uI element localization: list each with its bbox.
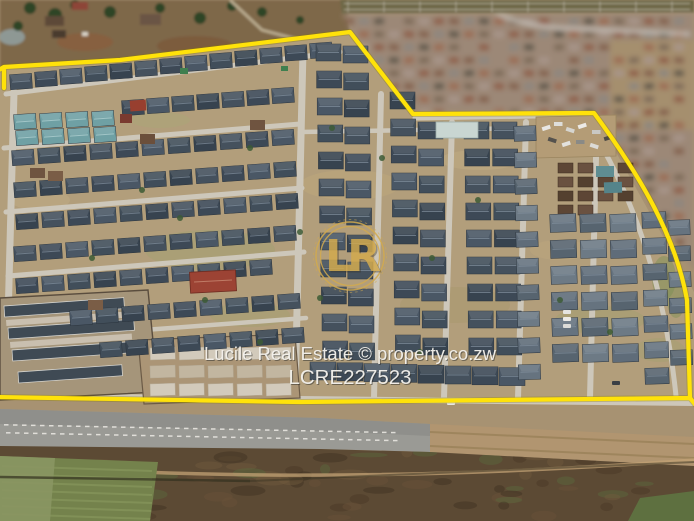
suburb-house [569,44,579,51]
lane-dash [49,425,54,427]
suburb-house [359,18,369,25]
house [222,229,245,245]
suburb-house [554,31,564,38]
suburb-house [389,43,400,51]
scrub-patch [453,501,477,509]
lane-dash [121,426,126,428]
car [563,317,571,321]
house [514,152,537,168]
tree [202,297,208,303]
house [68,273,91,289]
red-roof-building [72,2,88,10]
green-field-light [0,456,55,521]
scrub-patch [342,503,361,511]
house [274,225,297,241]
house [118,237,141,253]
lane-dash [13,424,18,426]
house [14,181,37,197]
house [518,338,541,354]
house [317,98,342,115]
house [152,337,175,353]
suburb-house [419,30,430,38]
house [126,339,149,355]
house [148,303,171,319]
house [38,147,61,163]
suburb-house [674,134,685,142]
concrete-slab [150,383,175,396]
suburb-house [599,44,609,51]
suburb-house [599,17,610,25]
tree [429,255,435,261]
unfinished-house [578,177,593,187]
lane-dash [312,438,317,440]
house [64,145,87,161]
house [40,112,63,128]
house [250,259,273,275]
car [563,310,571,314]
suburb-house [374,31,384,38]
house [172,95,195,111]
suburb-house [449,96,459,103]
scrub-patch [327,515,350,521]
suburb-house [584,57,594,64]
suburb-house [419,95,430,103]
house [90,143,113,159]
suburb-house [449,17,460,25]
house [346,181,371,198]
unfinished-house [250,120,265,130]
house [174,301,197,317]
lane-dash [346,431,351,433]
house [320,206,345,223]
tree [607,329,613,335]
house [60,68,83,84]
house [116,141,139,157]
suburb-house [629,18,640,25]
tree [475,197,481,203]
lane-dash [256,429,261,431]
lane-dash [249,437,254,439]
suburb-house [644,108,655,116]
suburb-house [374,18,384,25]
lane-dash [31,425,36,427]
suburb-house [584,96,594,103]
lane-dash [240,437,245,439]
logo-monogram: LR [325,231,380,282]
suburb-house [434,57,445,64]
suburb-house [494,18,504,25]
teal-roof-house [604,182,622,194]
house [349,316,374,333]
house [278,293,301,309]
suburb-house [659,44,669,51]
lane-dash [33,433,38,435]
scrub-patch [495,497,522,503]
lane-dash [132,435,137,437]
house [493,176,518,193]
lane-dash [159,435,164,437]
lane-dash [294,438,299,440]
scrub-patch [313,453,348,462]
suburb-house [539,82,550,90]
house [493,149,518,166]
lane-dash [276,437,281,439]
lane-dash [301,430,306,432]
house [94,126,117,142]
lane-dash [130,427,135,429]
house [120,205,143,221]
plots-ground [340,0,694,14]
suburb-house [404,17,415,25]
house [274,161,297,177]
suburb-house [674,96,684,103]
unfinished-house [558,177,573,187]
lane-dash [85,426,90,428]
aerial-photo: LR LR Lucile Real Estate © property.co.z… [0,0,694,521]
lane-dash [42,433,47,435]
suburb-house [569,96,579,103]
lane-dash [141,435,146,437]
house [344,73,369,90]
house [197,93,220,109]
house [518,364,541,380]
suburb-house [629,121,640,129]
house [643,264,668,281]
house [222,165,245,181]
suburb-house [644,148,654,155]
house [472,367,498,385]
lane-dash [348,439,353,441]
green-shed [281,66,288,71]
house [16,277,39,293]
scrub-patch [366,476,388,486]
suburb-house [674,122,685,129]
house [394,281,419,298]
house [465,176,490,193]
suburb-house [569,70,579,77]
parking-area [536,115,616,158]
suburb-house [584,70,594,77]
house [582,318,609,337]
lane-dash [321,438,326,440]
suburb-house [524,56,535,64]
tree [317,295,323,301]
house [668,220,691,236]
house [550,214,577,233]
house [420,230,445,247]
suburb-house [524,31,534,38]
suburb-house [419,18,429,25]
house [16,129,39,145]
house [226,297,249,313]
lane-dash [384,440,389,442]
house [14,245,37,261]
suburb-house [539,69,550,77]
suburb-house [404,69,415,77]
house [644,342,669,359]
suburb-house [539,18,549,25]
teal-roof-house [596,166,614,177]
suburb-house [629,83,639,90]
tree [89,255,95,261]
house [66,241,89,257]
lane-dash [285,438,290,440]
unfinished-house [558,163,573,173]
suburb-house [389,31,399,38]
suburb-house [434,83,445,90]
house [317,71,342,88]
house [194,135,217,151]
suburb-house [539,95,550,103]
suburb-house [509,31,519,38]
house [122,305,145,321]
suburb-house [434,44,445,51]
suburb-house [449,44,459,51]
lane-dash [51,433,56,435]
suburb-house [659,135,669,142]
suburb-house [644,161,654,168]
suburb-house [404,30,415,38]
tree [104,6,116,18]
suburb-house [599,109,609,116]
suburb-house [674,200,684,207]
tree [247,145,253,151]
suburb-house [614,17,625,25]
lane-dash [274,429,279,431]
suburb-house [674,174,684,181]
house [392,173,417,190]
concrete-slab [237,383,262,396]
suburb-house [584,18,594,25]
suburb-house [449,70,459,77]
suburb-house [419,82,430,90]
suburb-house [674,148,684,155]
lane-dash [328,431,333,433]
house [276,193,299,209]
lane-dash [96,434,101,436]
lane-dash [339,439,344,441]
truck [554,122,563,126]
tree [297,229,303,235]
lane-dash [229,429,234,431]
scrub-patch [500,491,522,497]
house [582,344,609,363]
house [610,214,637,233]
scrub-patch [506,486,524,491]
unfinished-house [88,300,103,310]
watermark-logo: LR LR [314,220,387,293]
suburb-house [479,18,489,25]
house [68,209,91,225]
house [170,169,193,185]
farm-building [52,30,66,38]
suburb-house [554,83,565,90]
lane-dash [114,434,119,436]
house [68,127,91,143]
lane-dash [166,427,171,429]
lane-dash [193,428,198,430]
scrub-patch [557,476,575,485]
lane-dash [58,425,63,427]
house [610,240,637,259]
suburb-house [659,109,669,116]
suburb-house [464,57,474,64]
scrub-patch [214,451,248,463]
maroon-roof-house [120,114,132,123]
house [92,110,115,126]
farm-building [45,16,64,26]
suburb-house [614,96,624,103]
house [644,316,669,333]
scrub-patch [363,487,394,494]
suburb-house [629,148,639,155]
suburb-house [524,96,535,103]
house [94,271,117,287]
lane-dash [364,431,369,433]
house [395,308,420,325]
tree [257,7,267,17]
suburb-house [554,95,565,103]
suburb-house [584,83,594,90]
house [580,214,607,233]
house [70,309,93,325]
house [178,335,201,351]
lane-dash [6,432,11,434]
suburb-house [539,31,549,38]
house [144,171,167,187]
house [247,89,270,105]
scrub-patch [604,494,620,500]
lane-dash [177,436,182,438]
suburb-house [674,17,685,25]
scrub-patch [402,480,433,489]
suburb-house [659,187,670,194]
suburb-house [419,56,430,64]
lane-dash [195,436,200,438]
house [94,207,117,223]
suburb-house [389,70,399,77]
lane-dash [292,430,297,432]
suburb-house [644,70,654,77]
house [144,235,167,251]
concrete-slab [237,365,262,378]
suburb-house [389,57,399,64]
suburb-house [659,17,670,25]
suburb-house [644,173,655,181]
house [612,344,639,363]
lane-dash [231,437,236,439]
clubhouse [436,122,478,138]
suburb-house [584,31,594,38]
house [419,149,444,166]
scrub-patch [600,503,613,511]
scrub-patch [204,492,233,502]
suburb-house [419,44,429,51]
house [282,327,305,343]
house [42,211,65,227]
red-roof-house [130,99,147,111]
suburb-house [509,70,519,77]
scrub-patch [494,485,505,493]
house [14,113,37,129]
house [35,71,58,87]
suburb-house [674,70,684,77]
unfinished-house [578,191,593,201]
house [222,91,245,107]
lane-dash [168,435,173,437]
suburb-house [434,31,444,38]
unfinished-house [578,205,593,215]
unfinished-house [558,191,573,201]
suburb-house [629,70,639,77]
suburb-house [569,82,580,90]
tree [379,155,385,161]
suburb-house [464,69,475,77]
house [16,213,39,229]
house [172,201,195,217]
concrete-slab [150,365,175,378]
lane-dash [76,426,81,428]
tree [329,125,335,131]
scrub-patch [631,487,650,494]
suburb-house [539,57,549,64]
lane-dash [60,433,65,435]
farm-building [140,14,161,25]
house [146,203,169,219]
house [394,254,419,271]
lane-dash [222,436,227,438]
unfinished-house [48,171,63,181]
lane-dash [69,433,74,435]
suburb-house [374,44,384,51]
suburb-house [479,96,489,103]
lane-dash [357,439,362,441]
suburb-house [524,44,534,51]
house [642,238,667,255]
concrete-slab [208,383,233,396]
suburb-house [404,83,414,90]
house [146,267,169,283]
green-shed [180,68,188,74]
suburb-house [659,57,669,64]
scrub-patch [195,461,222,469]
lane-dash [366,439,371,441]
house [515,179,538,195]
house [118,173,141,189]
suburb-house [659,121,670,129]
suburb-house [659,160,670,168]
suburb-house [359,31,369,38]
lane-dash [4,424,9,426]
house [392,200,417,217]
house [85,65,108,81]
house [552,344,579,363]
lane-dash [22,424,27,426]
suburb-house [449,30,460,38]
suburb-house [434,69,445,77]
house [348,289,373,306]
house [422,284,447,301]
house [92,239,115,255]
watermark-code-text: LCRE227523 [288,366,411,389]
suburb-house [674,56,685,64]
truck [592,130,601,134]
lane-dash [87,434,92,436]
suburb-house [449,83,460,90]
house [551,292,578,311]
lane-dash [202,428,207,430]
house [210,52,233,68]
